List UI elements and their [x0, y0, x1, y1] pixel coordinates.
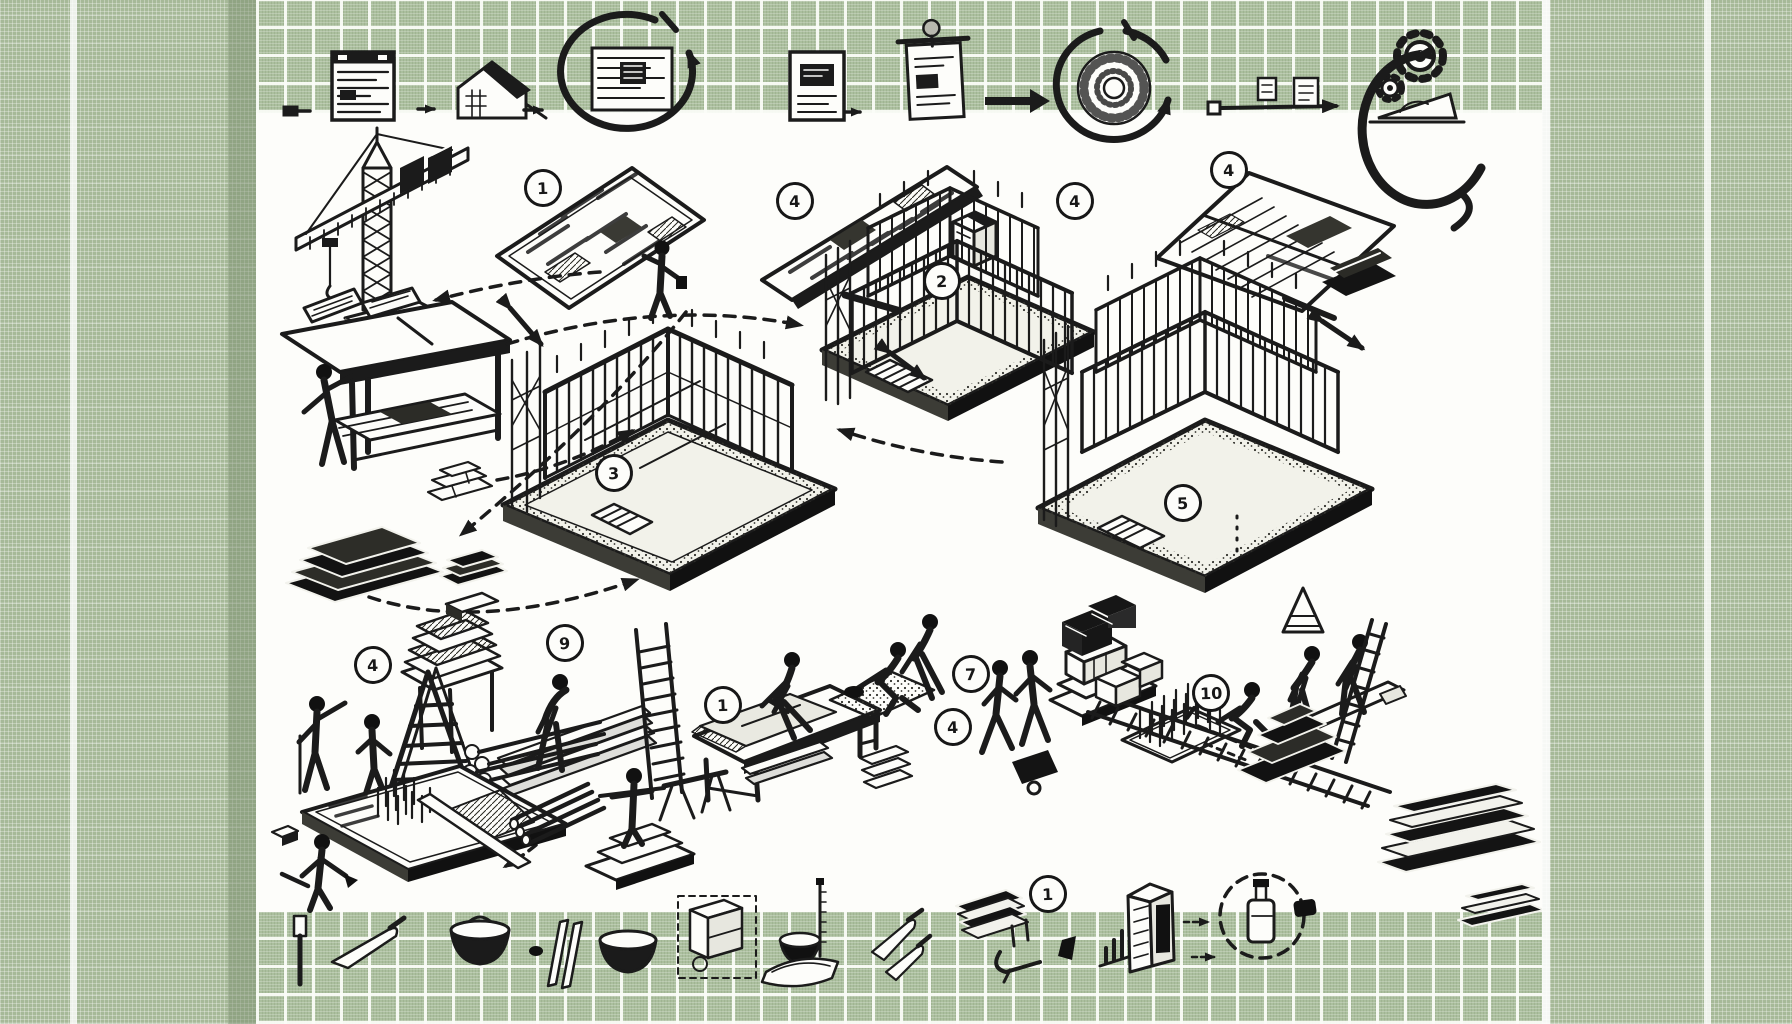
top-grid-strip — [256, 0, 1542, 113]
bottom-grid-strip — [256, 912, 1542, 1024]
right-green-border — [1542, 0, 1792, 1024]
main-canvas — [256, 113, 1542, 912]
illustration-stage: 1 4 2 4 4 3 5 4 9 1 7 4 10 1 — [0, 0, 1792, 1024]
left-green-border — [0, 0, 256, 1024]
